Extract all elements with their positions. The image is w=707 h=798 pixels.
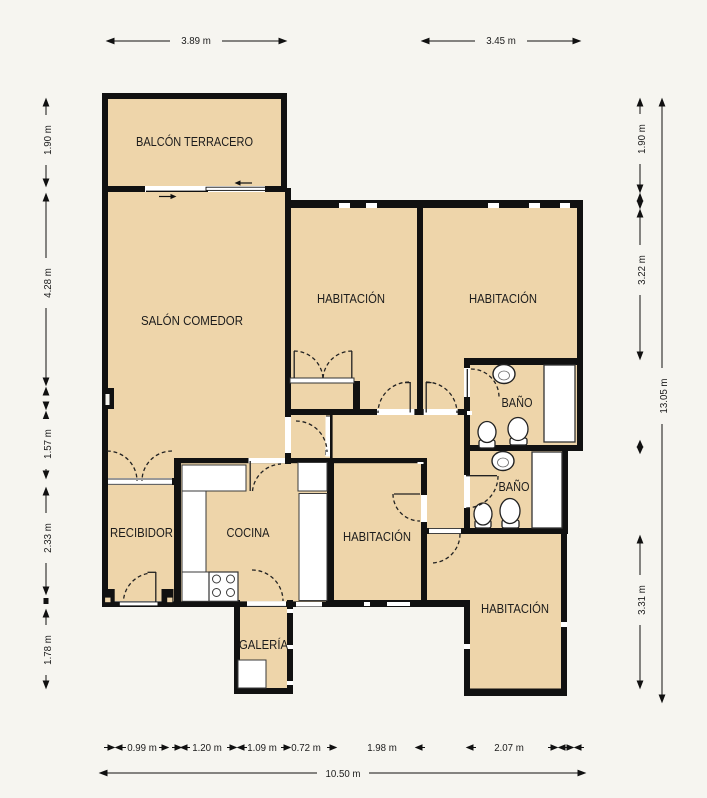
svg-text:SALÓN COMEDOR: SALÓN COMEDOR [141, 313, 243, 328]
svg-text:1.98 m: 1.98 m [367, 743, 397, 754]
svg-text:GALERÍA: GALERÍA [239, 637, 288, 652]
svg-text:3.22 m: 3.22 m [637, 255, 648, 285]
svg-text:BALCÓN TERRACERO: BALCÓN TERRACERO [136, 134, 253, 149]
svg-text:BAÑO: BAÑO [502, 395, 533, 410]
svg-text:2.33 m: 2.33 m [43, 523, 54, 553]
svg-text:4.28 m: 4.28 m [43, 268, 54, 298]
svg-text:HABITACIÓN: HABITACIÓN [481, 601, 549, 616]
svg-text:10.50 m: 10.50 m [325, 769, 360, 780]
svg-text:2.07 m: 2.07 m [494, 743, 524, 754]
svg-text:HABITACIÓN: HABITACIÓN [343, 529, 411, 544]
svg-text:COCINA: COCINA [227, 525, 270, 540]
svg-text:HABITACIÓN: HABITACIÓN [469, 291, 537, 306]
svg-text:0.72 m: 0.72 m [291, 743, 321, 754]
svg-text:BAÑO: BAÑO [499, 479, 530, 494]
svg-text:1.90 m: 1.90 m [43, 125, 54, 155]
svg-text:3.45 m: 3.45 m [486, 36, 516, 47]
svg-text:3.31 m: 3.31 m [637, 585, 648, 615]
svg-text:HABITACIÓN: HABITACIÓN [317, 291, 385, 306]
svg-text:1.78 m: 1.78 m [43, 635, 54, 665]
svg-text:1.09 m: 1.09 m [247, 743, 277, 754]
svg-text:1.57 m: 1.57 m [43, 429, 54, 459]
svg-text:3.89 m: 3.89 m [181, 36, 211, 47]
svg-text:RECIBIDOR: RECIBIDOR [110, 525, 173, 540]
svg-text:1.90 m: 1.90 m [637, 124, 648, 154]
svg-text:1.20 m: 1.20 m [192, 743, 222, 754]
svg-text:13.05 m: 13.05 m [659, 378, 670, 413]
svg-text:0.99 m: 0.99 m [127, 743, 157, 754]
